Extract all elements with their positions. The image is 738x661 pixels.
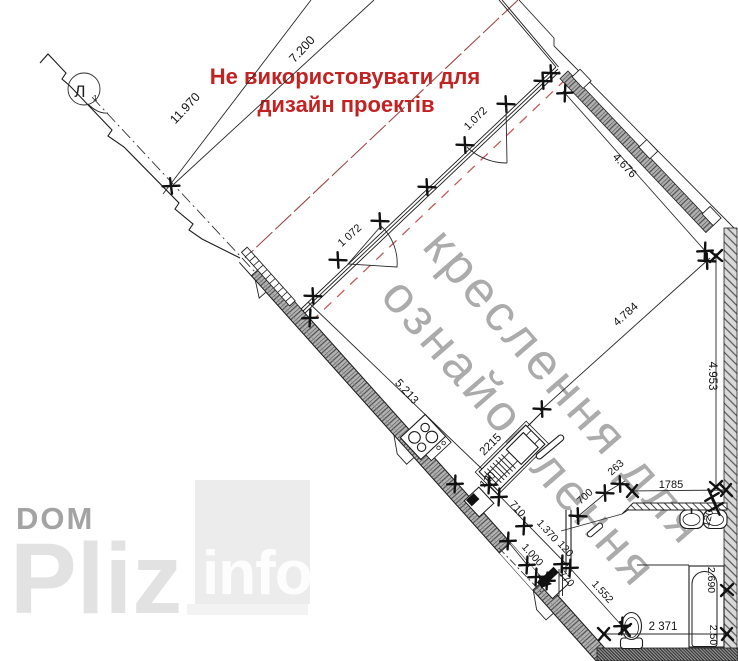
svg-text:Не використовувати для: Не використовувати для (210, 64, 480, 89)
svg-text:2.50: 2.50 (707, 625, 719, 646)
svg-text:Pliz: Pliz (10, 523, 182, 635)
svg-text:2 371: 2 371 (649, 621, 678, 633)
svg-text:info: info (202, 539, 312, 608)
svg-text:4.953: 4.953 (706, 362, 718, 391)
svg-text:1785: 1785 (659, 479, 683, 491)
svg-text:2.690: 2.690 (705, 567, 717, 593)
svg-text:Л: Л (74, 82, 85, 101)
